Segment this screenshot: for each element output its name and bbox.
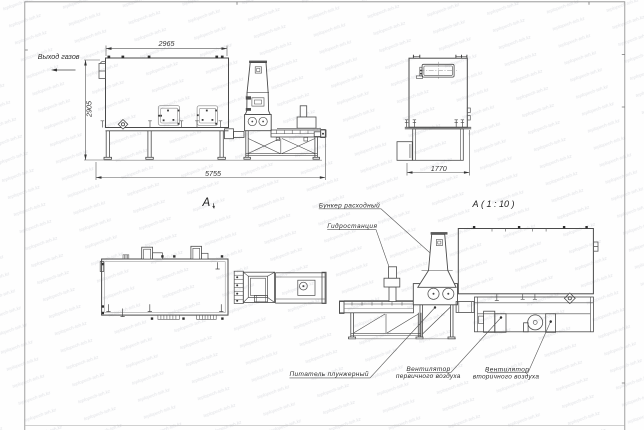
svg-text:Вентилятор: Вентилятор <box>406 366 450 373</box>
svg-text:5755: 5755 <box>205 169 222 178</box>
svg-text:А: А <box>202 197 211 209</box>
svg-text:Вентилятор: Вентилятор <box>485 366 529 373</box>
svg-text:первичного воздуха: первичного воздуха <box>396 372 461 380</box>
svg-text:Гидростанция: Гидростанция <box>327 222 377 230</box>
svg-text:вторичного воздуха: вторичного воздуха <box>473 373 540 381</box>
svg-text:Бункер расходный: Бункер расходный <box>319 201 380 209</box>
svg-text:Питатель плунжерный: Питатель плунжерный <box>290 370 369 378</box>
svg-text:А ( 1 : 10 ): А ( 1 : 10 ) <box>471 199 514 209</box>
svg-text:2905: 2905 <box>85 100 94 118</box>
svg-text:1770: 1770 <box>431 164 447 173</box>
svg-text:2965: 2965 <box>158 39 176 48</box>
svg-text:Выход газов: Выход газов <box>38 52 80 61</box>
